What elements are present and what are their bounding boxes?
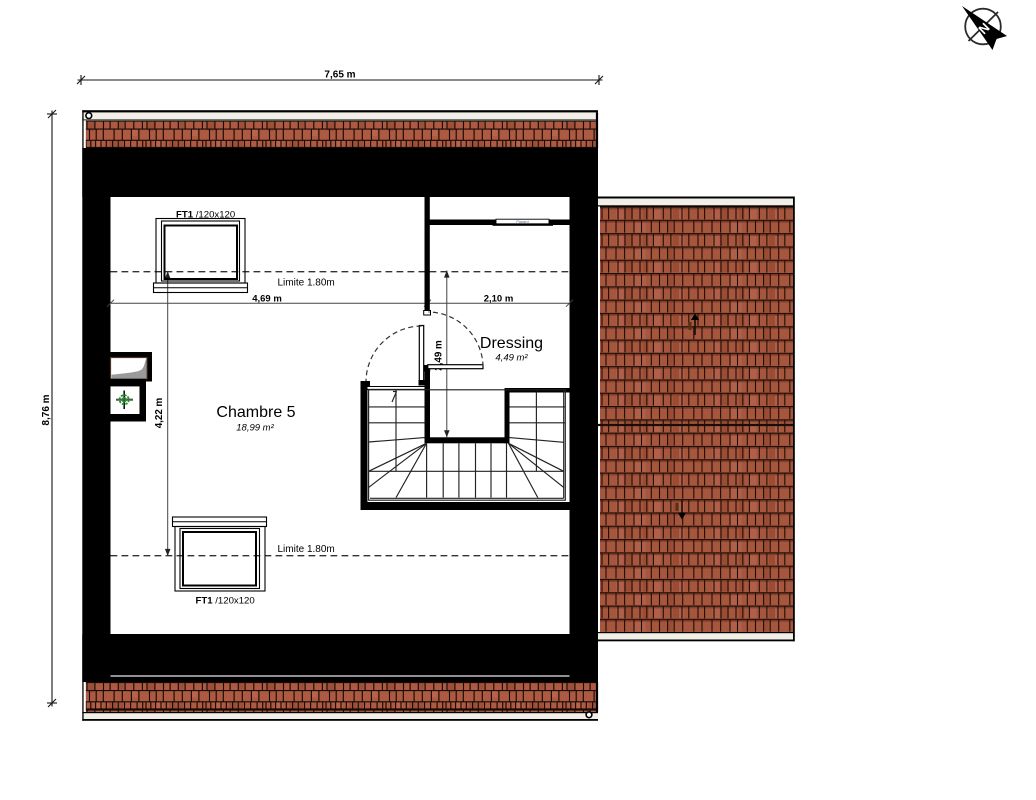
svg-text:FT1 /120x120: FT1 /120x120 [196, 596, 255, 607]
svg-text:Placard: Placard [516, 220, 528, 224]
svg-text:Limite 1.80m: Limite 1.80m [278, 278, 335, 289]
svg-text:Chambre 5: Chambre 5 [216, 404, 295, 421]
svg-text:4,49 m²: 4,49 m² [495, 353, 528, 364]
svg-text:4,69 m: 4,69 m [252, 294, 282, 305]
svg-text:18,99 m²: 18,99 m² [236, 423, 274, 434]
svg-text:4,22 m: 4,22 m [154, 397, 165, 428]
svg-text:8,76 m: 8,76 m [41, 394, 52, 425]
svg-text:Limite 1.80m: Limite 1.80m [278, 544, 335, 555]
svg-text:FT1 /120x120: FT1 /120x120 [176, 210, 235, 221]
svg-text:2,10 m: 2,10 m [484, 294, 514, 305]
svg-text:7,65 m: 7,65 m [324, 70, 355, 81]
svg-text:Dressing: Dressing [480, 335, 543, 352]
